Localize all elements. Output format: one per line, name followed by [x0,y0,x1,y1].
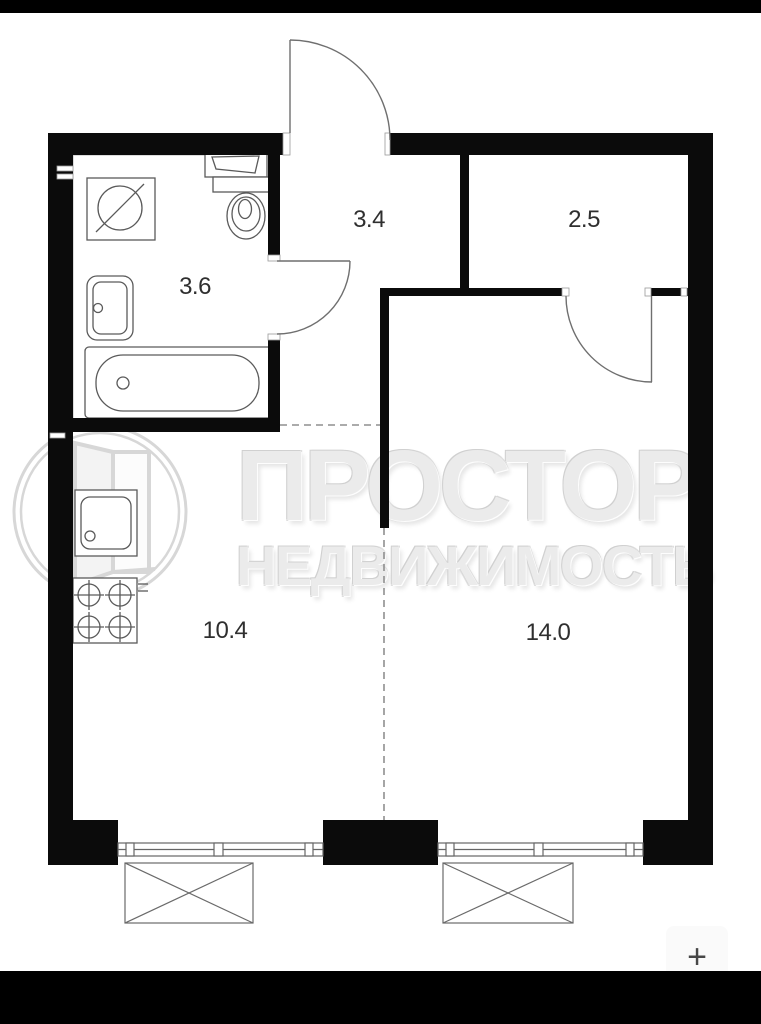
plus-icon: + [687,940,707,974]
kitchen-sink-icon [75,490,137,556]
wall-left [48,133,73,865]
wall-bottom-middle [323,820,438,865]
zone-dashed-lines [280,425,384,820]
wall-bottom-right [643,820,713,865]
letterbox-top [0,0,761,13]
wall-right [688,133,713,865]
walls [48,133,713,865]
bathtub-icon [85,347,272,418]
closet-door [566,296,652,382]
wall-top-right [390,133,713,155]
floor-plan-photo-viewer: ПРОСТОР НЕДВИЖИМОСТЬ [0,0,761,1024]
stove-4-burner-icon [73,578,148,643]
wall-bathroom-right-lower [268,340,280,418]
window-left [118,820,323,923]
letterbox-bottom [0,971,761,1024]
balcony-box-icon [125,863,253,923]
washing-machine-icon [87,178,155,240]
bathroom-door [277,261,350,334]
wash-basin-icon [87,276,133,340]
wall-sink-icon [205,152,267,177]
wall-hallway-bottom [380,288,562,296]
floor-plan: 3.6 3.4 2.5 10.4 14.0 [0,0,761,1024]
wall-bottom-left [48,820,118,865]
wall-top-left [48,133,283,155]
balcony-box-icon [443,863,573,923]
entrance-door [290,40,390,140]
wall-bathroom-right-upper [268,155,280,255]
wall-hallway-closet [460,155,469,296]
toilet-icon [213,177,273,239]
wall-bathroom-bottom [48,418,280,432]
room-area-label-kitchen: 10.4 [203,617,248,644]
room-area-label-closet: 2.5 [568,206,600,233]
room-area-label-living: 14.0 [526,619,571,646]
room-area-label-hallway: 3.4 [353,206,385,233]
room-area-label-bathroom: 3.6 [179,273,211,300]
window-right [438,820,643,923]
wall-corridor-living [380,288,389,528]
